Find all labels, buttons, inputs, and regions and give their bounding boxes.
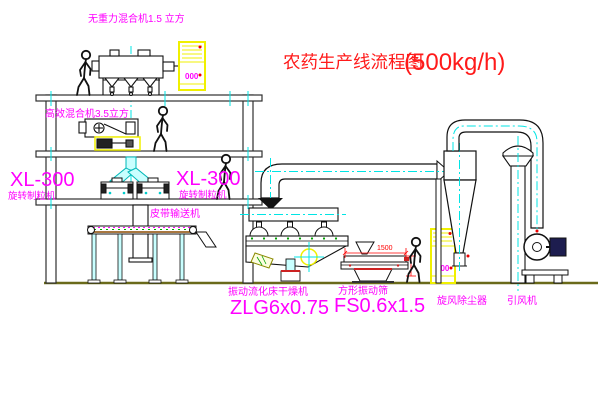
label-granulator-left-model: XL-300 xyxy=(10,169,75,191)
indicator-light-icon xyxy=(450,267,453,270)
process-flow-diagram: 000 xyxy=(0,0,600,403)
operator-figure-4 xyxy=(407,238,421,282)
label-granulator-left-name: 旋转制粒机 xyxy=(8,190,56,202)
exhaust-stack xyxy=(503,136,533,291)
label-high-mixer: 高效混合机3.5立方 xyxy=(45,107,129,120)
dimension-value: 1500 xyxy=(377,245,393,252)
operator-figure-1 xyxy=(77,51,91,95)
control-cabinet-2: 000 xyxy=(431,229,455,283)
belt-conveyor xyxy=(88,226,217,283)
cyclone-support-column xyxy=(436,179,441,283)
induced-draft-fan xyxy=(522,230,568,284)
indicator-light-icon xyxy=(449,232,452,235)
title-text: 农药生产线流程图 xyxy=(283,52,423,72)
fluid-bed-dryer xyxy=(240,198,348,281)
cabinet1-display: 000 xyxy=(185,72,199,81)
vibrating-screen xyxy=(341,242,409,283)
label-dryer-model: ZLG6x0.75 xyxy=(230,297,329,319)
operator-figure-2 xyxy=(154,107,168,151)
title-capacity: (500kg/h) xyxy=(404,49,505,76)
indicator-light-icon xyxy=(199,46,202,49)
label-granulator-right-model: XL-300 xyxy=(176,168,241,190)
granulator-left xyxy=(101,178,133,199)
label-belt-conveyor: 皮带输送机 xyxy=(150,207,200,220)
label-screen-model: FS0.6x1.5 xyxy=(334,295,425,317)
page-title: 农药生产线流程图 (500kg/h) xyxy=(283,49,505,76)
label-cyclone: 旋风除尘器 xyxy=(437,294,487,307)
gravity-mixer xyxy=(92,50,180,96)
label-granulator-right-name: 旋转制粒机 xyxy=(179,189,227,201)
label-fan: 引风机 xyxy=(507,294,537,307)
diagram-canvas: 000 xyxy=(0,0,600,403)
control-cabinet-1: 000 xyxy=(179,42,205,90)
high-efficiency-mixer xyxy=(79,119,140,150)
label-gravity-mixer: 无重力混合机1.5 立方 xyxy=(88,12,185,25)
indicator-light-icon xyxy=(199,74,202,77)
